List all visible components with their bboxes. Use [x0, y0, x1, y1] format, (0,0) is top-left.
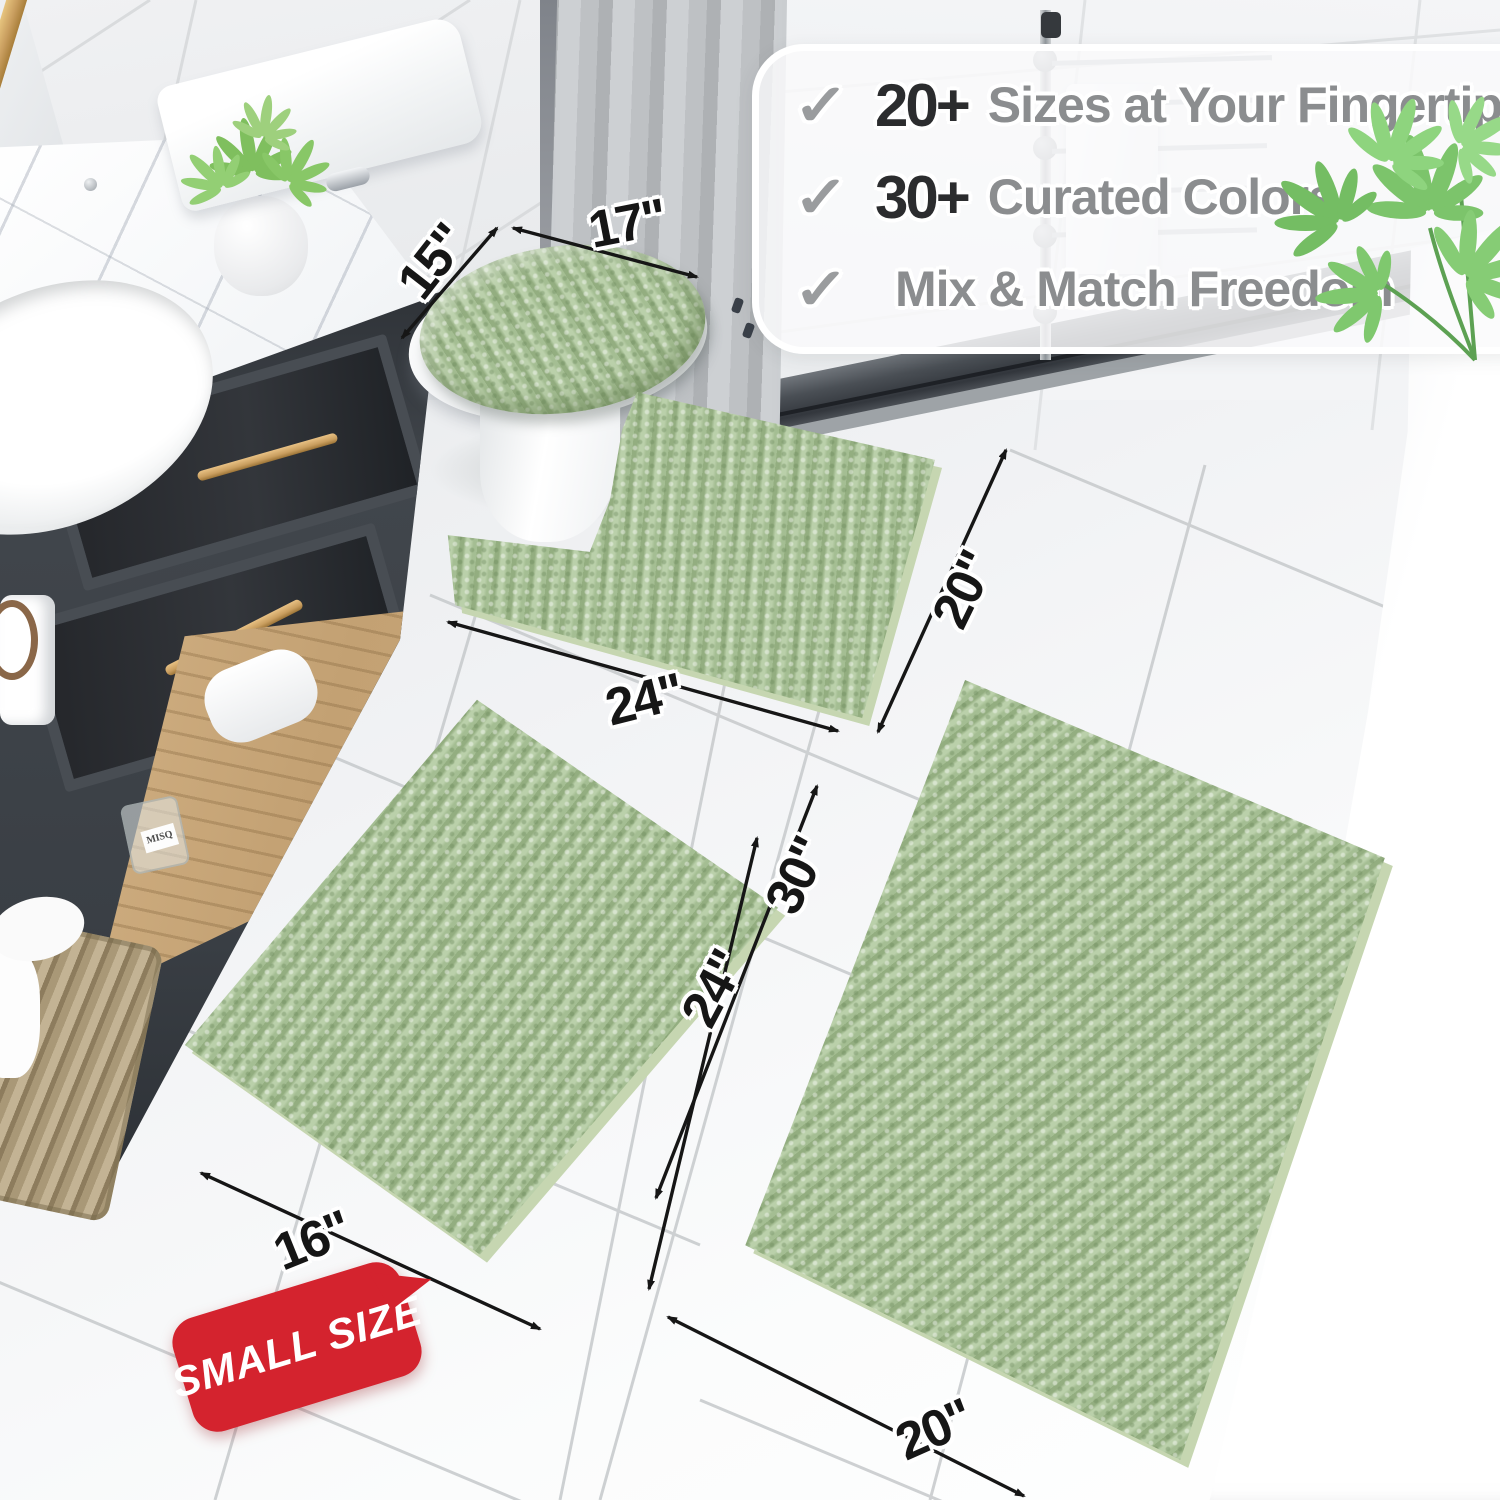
feature-count: 20+ [875, 71, 968, 140]
feature-count: 30+ [875, 163, 968, 232]
dim-arrow-small-length [649, 838, 757, 1289]
check-icon: ✓ [793, 255, 880, 323]
check-icon: ✓ [793, 71, 880, 139]
dim-arrow-large-width [668, 1317, 1024, 1496]
corner-plant [1225, 88, 1500, 373]
check-icon: ✓ [793, 163, 880, 231]
bathroom-product-photo: MISQ 15" 17" [0, 0, 1500, 1500]
